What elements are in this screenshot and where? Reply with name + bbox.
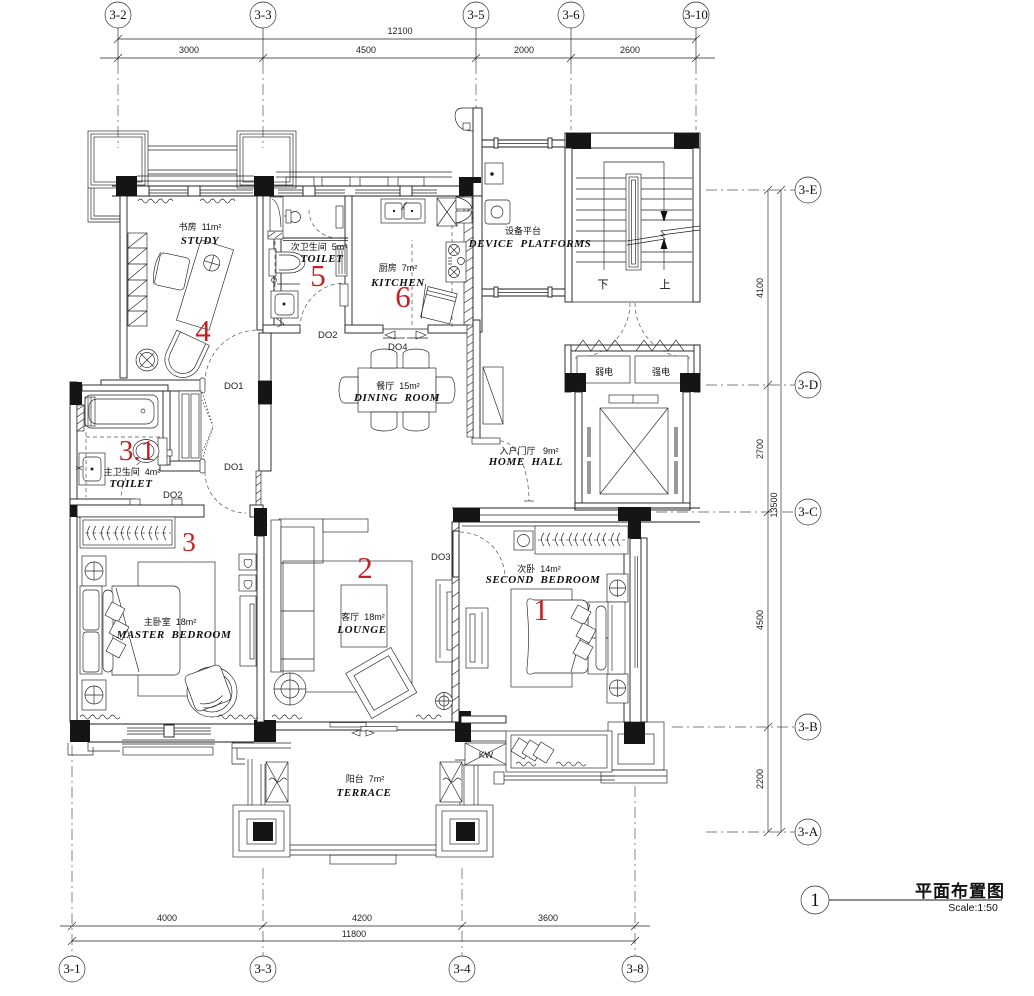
svg-text:DINING ROOM: DINING ROOM: [353, 392, 441, 404]
svg-text:3-3: 3-3: [254, 961, 271, 976]
svg-text:STUDY: STUDY: [181, 235, 220, 247]
svg-text:3-4: 3-4: [453, 961, 471, 976]
svg-text:4000: 4000: [157, 913, 177, 923]
svg-text:3-D: 3-D: [798, 377, 818, 392]
svg-text:2600: 2600: [620, 45, 640, 55]
svg-text:次卫生间 5m²: 次卫生间 5m²: [291, 241, 348, 252]
svg-text:次卧 14m²: 次卧 14m²: [517, 563, 561, 574]
svg-text:3-B: 3-B: [798, 719, 818, 734]
svg-text:MASTER BEDROOM: MASTER BEDROOM: [116, 629, 232, 641]
svg-text:3-6: 3-6: [562, 7, 580, 22]
svg-text:TERRACE: TERRACE: [337, 787, 392, 799]
svg-text:12100: 12100: [387, 26, 412, 36]
svg-text:KW: KW: [479, 750, 494, 760]
svg-text:3: 3: [182, 527, 196, 557]
svg-text:TOILET: TOILET: [109, 478, 153, 490]
svg-text:5: 5: [310, 258, 326, 293]
svg-text:1: 1: [810, 890, 820, 911]
svg-text:2700: 2700: [755, 439, 765, 459]
svg-text:书房 11m²: 书房 11m²: [179, 221, 222, 232]
svg-text:3-8: 3-8: [626, 961, 643, 976]
svg-text:3.1: 3.1: [119, 435, 155, 467]
svg-text:3-C: 3-C: [798, 504, 818, 519]
svg-text:客厅 18m²: 客厅 18m²: [341, 611, 385, 622]
svg-text:DO1: DO1: [224, 462, 244, 473]
svg-text:DO1: DO1: [224, 381, 244, 392]
svg-text:HOME HALL: HOME HALL: [488, 456, 563, 468]
svg-text:设备平台: 设备平台: [505, 225, 541, 236]
svg-text:阳台 7m²: 阳台 7m²: [346, 773, 385, 784]
svg-text:DO3: DO3: [431, 552, 451, 563]
svg-text:3000: 3000: [179, 45, 199, 55]
svg-text:餐厅 15m²: 餐厅 15m²: [376, 380, 420, 391]
svg-text:3-E: 3-E: [799, 182, 818, 197]
svg-text:4100: 4100: [755, 278, 765, 298]
svg-text:4500: 4500: [356, 45, 376, 55]
svg-text:3600: 3600: [538, 913, 558, 923]
svg-text:13500: 13500: [769, 492, 779, 517]
svg-text:厨房 7m²: 厨房 7m²: [379, 262, 418, 273]
svg-text:强电: 强电: [652, 366, 670, 377]
svg-text:6: 6: [395, 279, 411, 314]
svg-text:3-A: 3-A: [798, 824, 819, 839]
svg-text:主卫生间 4m²: 主卫生间 4m²: [104, 466, 161, 477]
svg-text:DO4: DO4: [388, 342, 408, 353]
svg-text:3-5: 3-5: [467, 7, 484, 22]
svg-text:下: 下: [598, 279, 609, 291]
svg-text:SECOND BEDROOM: SECOND BEDROOM: [486, 574, 601, 586]
svg-text:4: 4: [195, 313, 211, 348]
svg-text:DO2: DO2: [318, 330, 338, 341]
svg-text:3-2: 3-2: [109, 7, 126, 22]
svg-text:LOUNGE: LOUNGE: [336, 624, 386, 636]
svg-text:入户门厅 9m²: 入户门厅 9m²: [499, 445, 558, 456]
svg-text:平面布置图: 平面布置图: [915, 881, 1005, 901]
svg-text:Scale:1:50: Scale:1:50: [948, 902, 998, 914]
svg-text:2000: 2000: [514, 45, 534, 55]
svg-text:4500: 4500: [755, 610, 765, 630]
svg-text:弱电: 弱电: [595, 366, 613, 377]
svg-text:DEVICE PLATFORMS: DEVICE PLATFORMS: [468, 238, 592, 250]
svg-text:2: 2: [357, 550, 373, 585]
svg-text:11800: 11800: [342, 929, 366, 939]
svg-text:3-10: 3-10: [684, 7, 708, 22]
svg-text:2200: 2200: [755, 769, 765, 789]
svg-text:上: 上: [660, 278, 671, 291]
svg-text:1: 1: [533, 592, 549, 627]
svg-text:DO2: DO2: [163, 490, 183, 501]
svg-text:主卧室 18m²: 主卧室 18m²: [144, 616, 197, 627]
svg-text:3-1: 3-1: [63, 961, 80, 976]
svg-text:4200: 4200: [352, 913, 372, 923]
svg-text:3-3: 3-3: [254, 7, 271, 22]
